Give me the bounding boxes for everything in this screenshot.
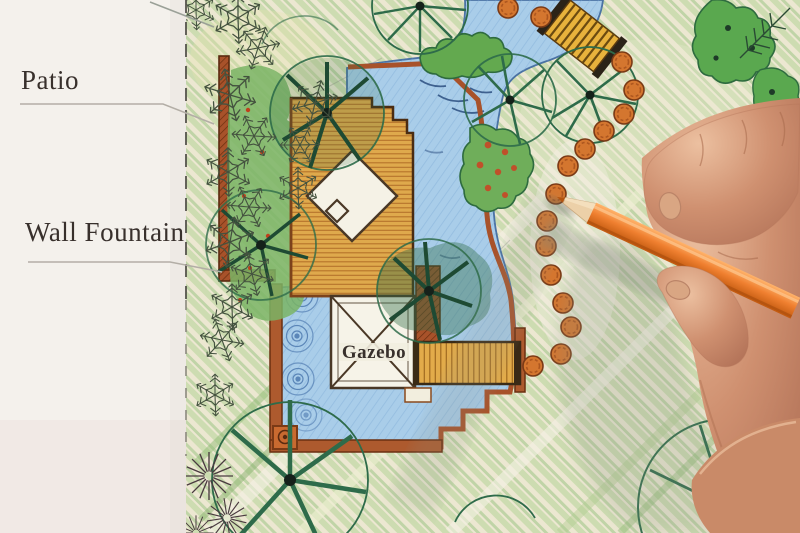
gazebo-step — [405, 388, 431, 402]
wall-fountain-label: Wall Fountain — [25, 217, 185, 247]
stepping-stone — [614, 104, 634, 124]
stepping-stone — [498, 0, 518, 18]
tree-symbol — [270, 56, 384, 170]
stepping-stone — [523, 356, 543, 376]
photo-of-landscape-plan: Gazebo — [0, 0, 800, 533]
fountain-jet-ornament — [273, 426, 297, 449]
patio-label: Patio — [21, 65, 79, 95]
stepping-stone — [575, 139, 595, 159]
landscape-plan-scene: Gazebo — [0, 0, 800, 533]
margin-tint — [0, 420, 186, 533]
stepping-stone — [612, 52, 632, 72]
stepping-stone — [624, 80, 644, 100]
stepping-stone — [531, 7, 551, 27]
stepping-stone — [558, 156, 578, 176]
stepping-stone — [594, 121, 614, 141]
margin-edge-shading — [170, 0, 186, 533]
gazebo-label: Gazebo — [342, 342, 406, 363]
